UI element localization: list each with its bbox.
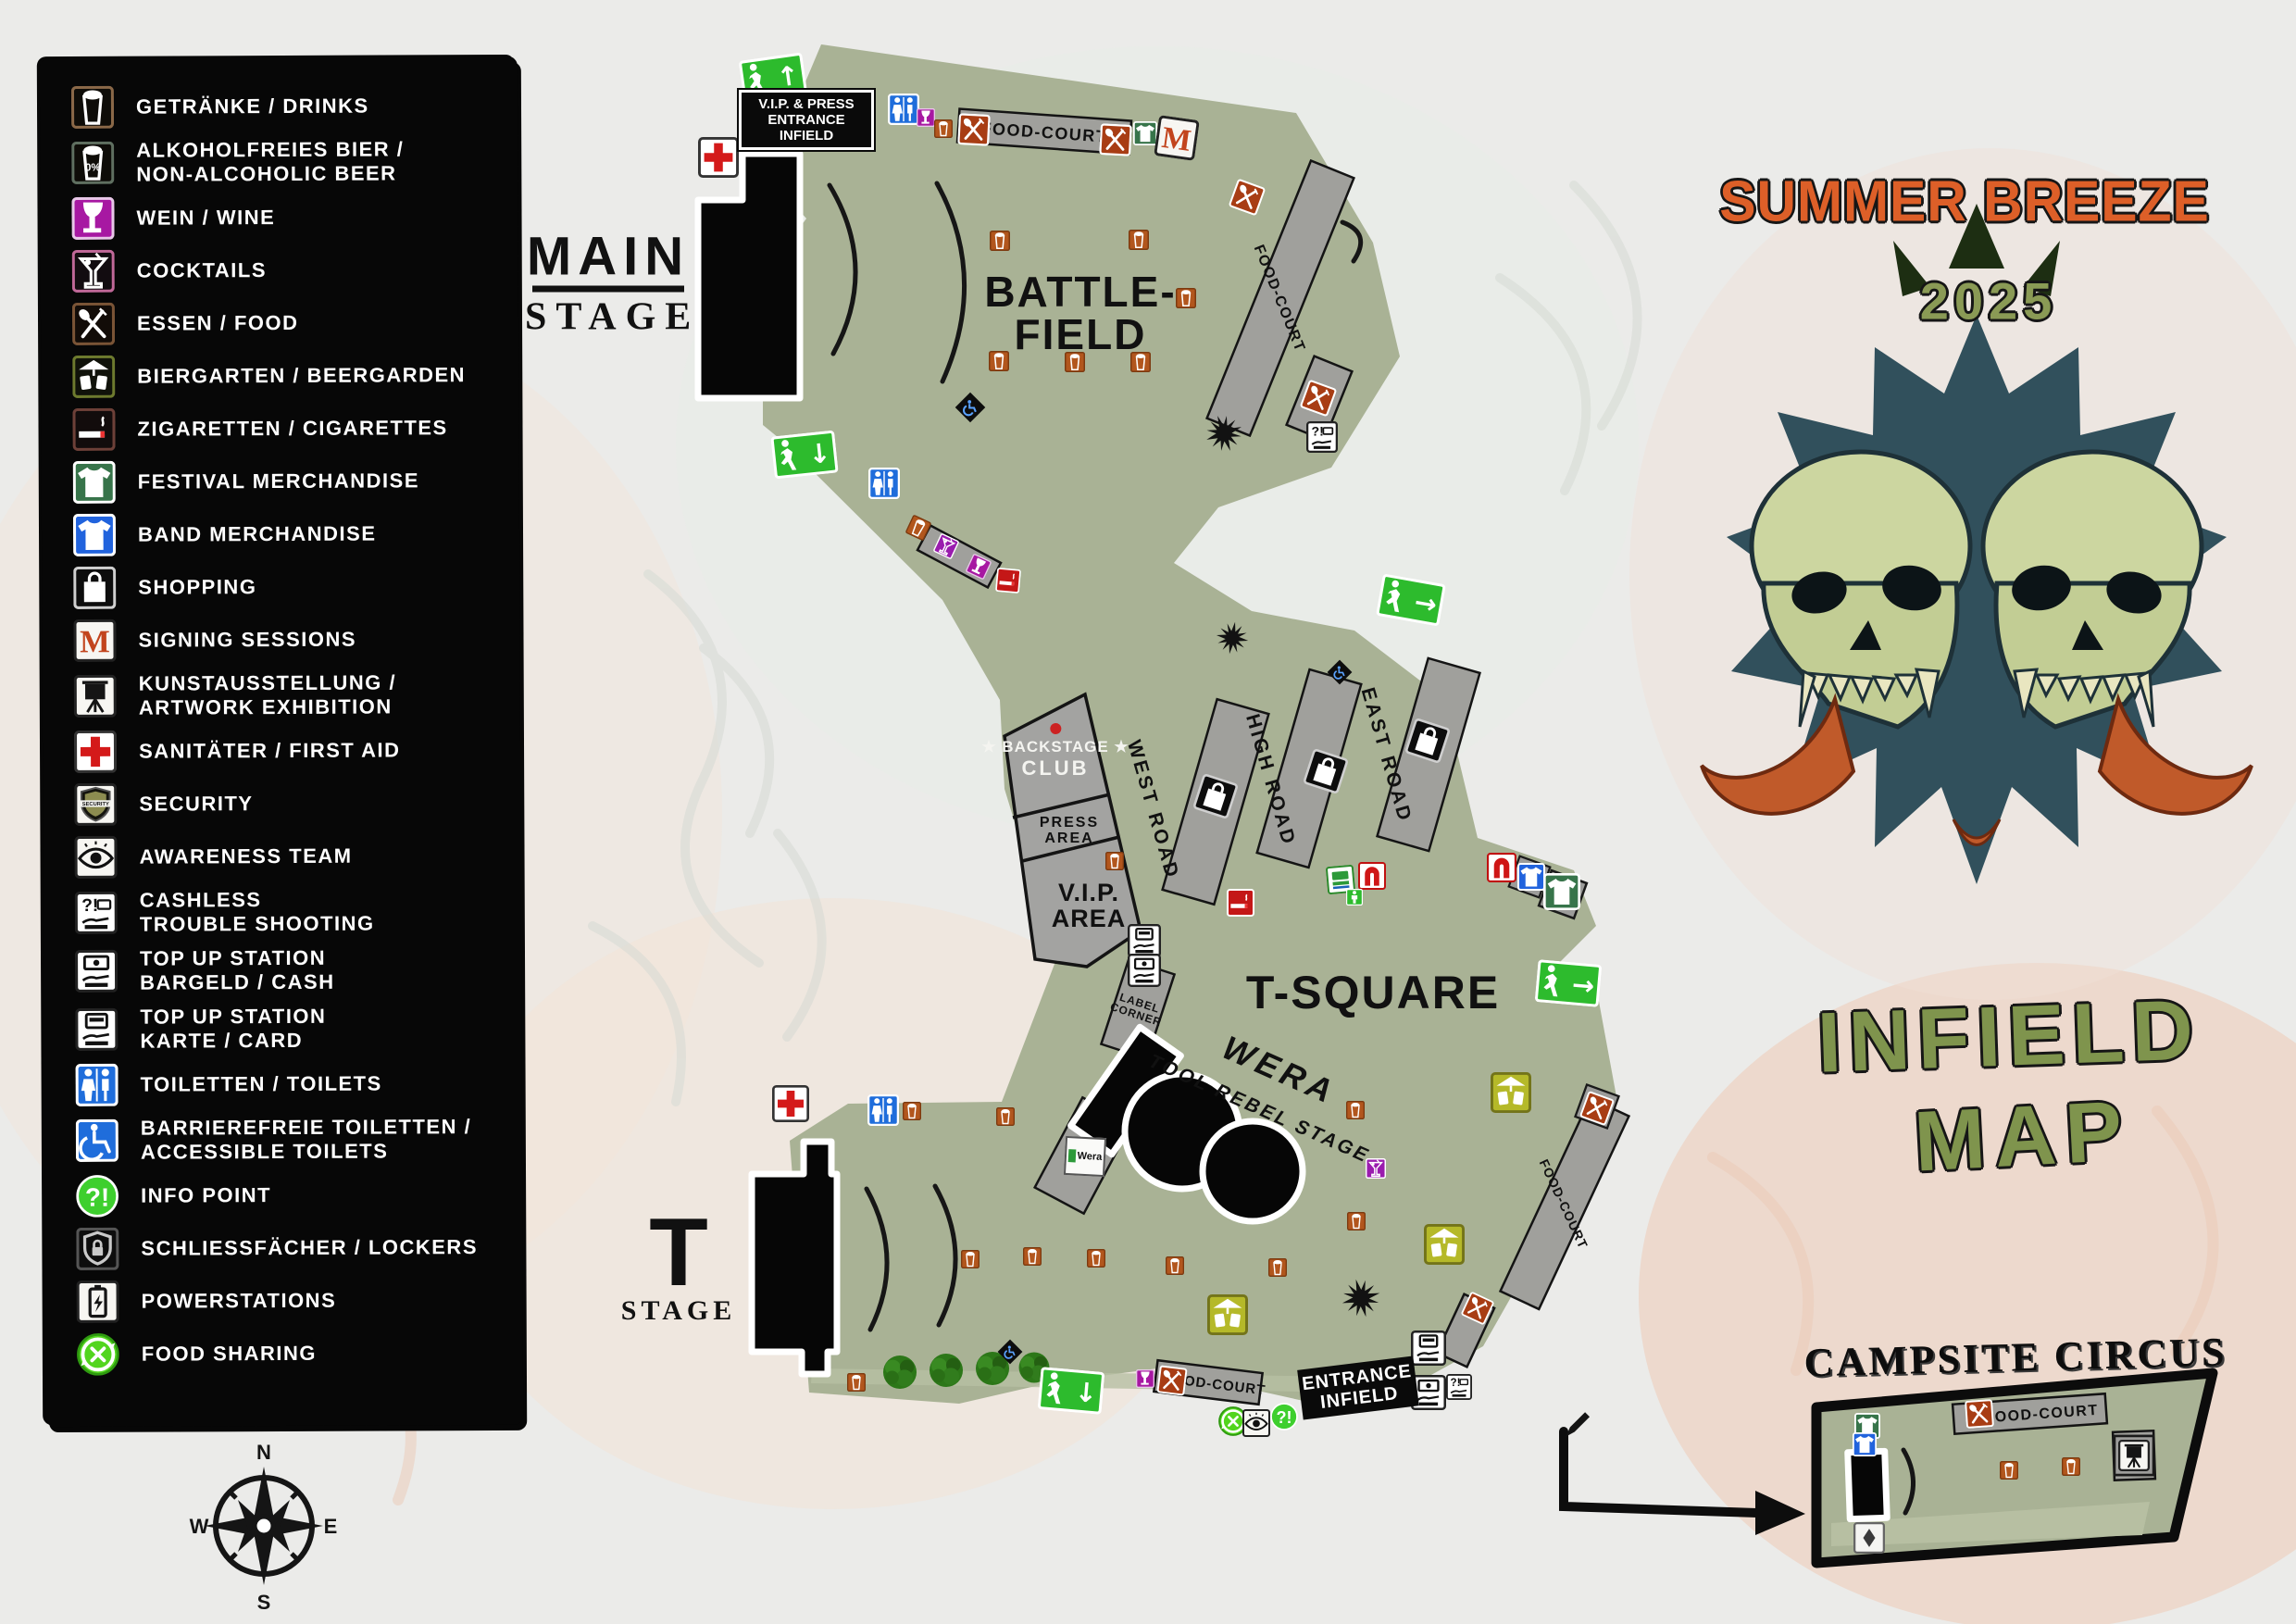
exit-down-icon: ↓ bbox=[1038, 1367, 1105, 1415]
legend-item-label: ALKOHOLFREIES BIER /NON-ALCOHOLIC BEER bbox=[136, 137, 404, 186]
svg-text:→: → bbox=[1571, 968, 1596, 1002]
drinks-icon bbox=[905, 514, 931, 541]
drinks-icon bbox=[1268, 1258, 1287, 1277]
legend-item-toilets: TOILETTEN / TOILETS bbox=[76, 1062, 522, 1106]
legend-item-label: BAND MERCHANDISE bbox=[138, 522, 377, 547]
legend-item-label: CASHLESSTROUBLE SHOOTING bbox=[140, 888, 375, 937]
biergarten-icon bbox=[1491, 1072, 1531, 1113]
logo-title: SUMMER BREEZE bbox=[1719, 169, 2209, 235]
toilets-icon bbox=[888, 94, 919, 125]
wine-icon bbox=[1136, 1369, 1154, 1388]
wera-sign: Wera bbox=[1064, 1136, 1106, 1177]
legend-item-artwork-exhibition: KUNSTAUSSTELLUNG /ARTWORK EXHIBITION bbox=[74, 670, 520, 720]
food-icon bbox=[1299, 379, 1337, 417]
t-square-label: T-SQUARE bbox=[1246, 966, 1500, 1019]
drinks-icon bbox=[1346, 1101, 1365, 1119]
legend-item-label: BIERGARTEN / BEERGARDEN bbox=[137, 363, 466, 389]
legend-item-powerstations: POWERSTATIONS bbox=[77, 1279, 523, 1323]
food-icon bbox=[1156, 1365, 1187, 1395]
press-area-label: PRESS AREA bbox=[1040, 815, 1099, 846]
accessible-diamond-icon bbox=[955, 392, 986, 423]
accessible-toilets-icon bbox=[76, 1119, 119, 1162]
vip-press-entrance-sign: V.I.P. & PRESS ENTRANCE INFIELD bbox=[739, 90, 874, 150]
drinks-icon bbox=[990, 231, 1010, 251]
security-icon: SECURITY bbox=[74, 783, 117, 826]
legend-item-beergarden: BIERGARTEN / BEERGARDEN bbox=[72, 354, 518, 398]
legend-item-band-merchandise: BAND MERCHANDISE bbox=[73, 512, 519, 556]
legend-item-security: SECURITYSECURITY bbox=[74, 781, 520, 826]
legend-item-festival-merchandise: FESTIVAL MERCHANDISE bbox=[73, 459, 519, 504]
battlefield-label: BATTLE- FIELD bbox=[984, 270, 1176, 356]
drinks-icon bbox=[847, 1373, 866, 1392]
sb-star-icon bbox=[1334, 1271, 1389, 1326]
legend-item-label: ZIGARETTEN / CIGARETTES bbox=[137, 416, 447, 441]
legend-item-label: TOILETTEN / TOILETS bbox=[141, 1072, 382, 1097]
drinks-icon bbox=[1176, 288, 1196, 308]
legend-item-food: ESSEN / FOOD bbox=[72, 301, 518, 345]
exit-down-icon: ↓ bbox=[770, 431, 838, 480]
legend-item-wine: WEIN / WINE bbox=[71, 195, 518, 240]
food-icon bbox=[1460, 1291, 1494, 1325]
cigarettes-icon bbox=[995, 568, 1021, 593]
legend-item-shopping: SHOPPING bbox=[73, 565, 519, 609]
svg-text:SECURITY: SECURITY bbox=[82, 802, 109, 807]
accessible-diamond-icon bbox=[997, 1339, 1023, 1365]
svg-text:?!: ?! bbox=[1451, 1377, 1461, 1389]
shopping-icon bbox=[1404, 718, 1451, 764]
cashless-icon: ?! bbox=[1446, 1374, 1472, 1400]
drinks-icon bbox=[961, 1250, 980, 1268]
legend-item-label: SIGNING SESSIONS bbox=[138, 628, 356, 653]
first-aid-icon bbox=[698, 137, 739, 178]
legend-item-topup-cash: TOP UP STATIONBARGELD / CASH bbox=[75, 945, 521, 995]
svg-text:M: M bbox=[1160, 121, 1193, 158]
legend-item-first-aid: SANITÄTER / FIRST AID bbox=[74, 729, 520, 773]
legend-item-drinks: GETRÄNKE / DRINKS bbox=[71, 84, 518, 129]
logo-infield: INFIELD bbox=[1816, 981, 2202, 1092]
food-icon bbox=[1228, 178, 1266, 216]
svg-text:?!: ?! bbox=[1276, 1408, 1291, 1427]
legend-item-cashless-trouble-shooting: ?!CASHLESSTROUBLE SHOOTING bbox=[75, 887, 521, 937]
shopping-icon bbox=[73, 567, 116, 609]
legend-item-food-sharing: FOOD SHARING bbox=[77, 1331, 523, 1376]
legend-item-label: COCKTAILS bbox=[137, 258, 267, 283]
legend-item-cigarettes: ZIGARETTEN / CIGARETTES bbox=[72, 406, 518, 451]
signing-sessions-icon: M bbox=[73, 619, 116, 662]
biergarten-icon bbox=[1207, 1294, 1248, 1335]
band-merch-icon bbox=[1517, 863, 1545, 891]
toilets-icon bbox=[76, 1064, 119, 1106]
legend-item-cocktails: COCKTAILS bbox=[72, 248, 518, 293]
drinks-icon bbox=[903, 1102, 921, 1120]
tree-icon bbox=[879, 1351, 921, 1393]
svg-text:↑: ↑ bbox=[775, 59, 802, 94]
legend-item-label: BARRIEREFREIE TOILETTEN /ACCESSIBLE TOIL… bbox=[141, 1115, 472, 1165]
topup-card-icon bbox=[75, 1008, 118, 1051]
accessible-diamond-icon bbox=[1327, 659, 1353, 685]
beergarden-icon bbox=[72, 356, 115, 398]
drinks-icon bbox=[1129, 230, 1149, 250]
svg-text:?!: ?! bbox=[81, 896, 98, 916]
backstage-club-label: ★ BACKSTAGE ★ CLUB bbox=[981, 723, 1129, 781]
drinks-icon bbox=[934, 119, 953, 138]
legend-item-signing-sessions: MSIGNING SESSIONS bbox=[73, 618, 519, 662]
main-stage-label: MAIN STAGE bbox=[525, 231, 692, 340]
exit-right-icon: → bbox=[1535, 959, 1603, 1007]
legend-item-label: FOOD SHARING bbox=[142, 1342, 317, 1367]
band-merchandise-icon bbox=[73, 514, 116, 556]
drinks-icon bbox=[1105, 852, 1124, 870]
vip-area-label: V.I.P. AREA bbox=[1052, 880, 1127, 931]
legend-item-label: AWARENESS TEAM bbox=[139, 844, 352, 869]
red-arch-icon bbox=[1358, 862, 1386, 890]
food-icon bbox=[1965, 1399, 1994, 1429]
cashless-trouble-shooting-icon: ?! bbox=[75, 892, 118, 934]
logo-map: MAP bbox=[1912, 1082, 2134, 1191]
topup-cash-icon bbox=[1128, 954, 1161, 987]
food-icon bbox=[957, 113, 991, 146]
topup-card-icon bbox=[1411, 1330, 1446, 1366]
drinks-icon bbox=[1023, 1247, 1042, 1266]
cocktail-icon bbox=[932, 532, 959, 559]
white-sign-icon bbox=[1853, 1522, 1885, 1554]
festival-merch-icon bbox=[1133, 121, 1157, 145]
awareness-team-icon bbox=[74, 836, 117, 879]
legend-item-label: WEIN / WINE bbox=[136, 206, 275, 231]
drinks-icon bbox=[2000, 1461, 2018, 1480]
green-person-icon bbox=[1346, 889, 1363, 906]
legend-item-label: KUNSTAUSSTELLUNG /ARTWORK EXHIBITION bbox=[139, 670, 397, 719]
legend-item-topup-card: TOP UP STATIONKARTE / CARD bbox=[75, 1004, 521, 1054]
sb-star-icon bbox=[1197, 406, 1252, 461]
info-point-icon: ?! bbox=[76, 1175, 119, 1218]
logo-year: 2025 bbox=[1920, 271, 2058, 331]
festival-merchandise-icon bbox=[73, 461, 116, 504]
legend-item-label: FESTIVAL MERCHANDISE bbox=[138, 468, 419, 493]
wine-icon bbox=[917, 108, 935, 127]
toilets-icon bbox=[867, 1094, 899, 1126]
drinks-icon bbox=[996, 1107, 1015, 1126]
cashless-icon: ?! bbox=[1306, 421, 1338, 453]
legend-item-label: INFO POINT bbox=[141, 1183, 271, 1208]
wine-icon bbox=[71, 197, 114, 240]
legend-item-label: TOP UP STATIONKARTE / CARD bbox=[140, 1005, 326, 1054]
non-alcoholic-beer-icon: 0% bbox=[71, 142, 114, 184]
svg-text:0%: 0% bbox=[85, 162, 101, 173]
legend-item-label: TOP UP STATIONBARGELD / CASH bbox=[140, 946, 335, 995]
svg-text:M: M bbox=[80, 624, 110, 659]
svg-text:↓: ↓ bbox=[807, 437, 833, 470]
legend-item-label: SANITÄTER / FIRST AID bbox=[139, 738, 401, 763]
food-icon bbox=[1099, 123, 1132, 156]
awareness-icon bbox=[1242, 1409, 1270, 1437]
drinks-icon bbox=[71, 86, 114, 129]
band-merch-icon bbox=[1853, 1432, 1877, 1456]
wine-icon bbox=[965, 553, 992, 580]
festival-merch-icon bbox=[1543, 873, 1580, 910]
cigarettes-icon bbox=[1227, 889, 1254, 917]
topup-cash-icon bbox=[75, 950, 118, 993]
lockers-icon bbox=[76, 1228, 119, 1270]
food-icon bbox=[72, 303, 115, 345]
legend-item-non-alcoholic-beer: 0%ALKOHOLFREIES BIER /NON-ALCOHOLIC BEER bbox=[71, 137, 518, 187]
t-stage-label: T STAGE bbox=[621, 1210, 736, 1327]
tree-icon bbox=[925, 1349, 967, 1392]
svg-text:↓: ↓ bbox=[1074, 1376, 1099, 1409]
biergarten-icon bbox=[1424, 1224, 1465, 1265]
legend-item-label: SCHLIESSFÄCHER / LOCKERS bbox=[141, 1235, 478, 1261]
signing-icon: M bbox=[1154, 115, 1200, 161]
legend-item-label: ESSEN / FOOD bbox=[137, 311, 299, 336]
artwork-exhibition-icon bbox=[74, 675, 117, 718]
drinks-icon bbox=[1166, 1256, 1184, 1275]
drinks-icon bbox=[2062, 1457, 2080, 1476]
legend-item-label: GETRÄNKE / DRINKS bbox=[136, 94, 369, 119]
infield-map-poster: FOOD-COURT FOOD-COURT FOOD-COURT FOOD-CO… bbox=[0, 0, 2296, 1624]
legend-item-label: SECURITY bbox=[139, 792, 253, 817]
legend-item-awareness-team: AWARENESS TEAM bbox=[74, 834, 520, 879]
legend-item-lockers: SCHLIESSFÄCHER / LOCKERS bbox=[76, 1226, 522, 1270]
cocktails-icon bbox=[72, 250, 115, 293]
red-arch-icon bbox=[1487, 853, 1516, 882]
sb-star-icon bbox=[1211, 617, 1254, 659]
exit-right-icon: → bbox=[1376, 573, 1446, 626]
first-aid-icon bbox=[772, 1085, 809, 1122]
legend-item-label: POWERSTATIONS bbox=[142, 1289, 337, 1314]
info-point-icon: ?! bbox=[1270, 1403, 1298, 1430]
artwork-icon bbox=[2118, 1440, 2150, 1471]
legend-item-info-point: ?!INFO POINT bbox=[76, 1173, 522, 1218]
drinks-icon bbox=[1087, 1249, 1105, 1268]
powerstations-icon bbox=[77, 1280, 119, 1323]
shopping-icon bbox=[1303, 748, 1349, 794]
cigarettes-icon bbox=[72, 408, 115, 451]
pen-icon bbox=[1563, 1408, 1594, 1440]
first-aid-icon bbox=[74, 731, 117, 773]
drinks-icon bbox=[1347, 1212, 1366, 1230]
legend-panel: GETRÄNKE / DRINKS0%ALKOHOLFREIES BIER /N… bbox=[40, 56, 523, 1427]
legend-item-accessible-toilets: BARRIEREFREIE TOILETTEN /ACCESSIBLE TOIL… bbox=[76, 1115, 522, 1165]
cocktail-icon bbox=[1366, 1158, 1386, 1179]
food-sharing-icon bbox=[77, 1333, 119, 1376]
topup-card-icon bbox=[1128, 924, 1161, 957]
legend-item-label: SHOPPING bbox=[138, 575, 256, 600]
shopping-icon bbox=[1192, 773, 1239, 819]
toilets-icon bbox=[868, 468, 900, 499]
svg-text:?!: ?! bbox=[1311, 425, 1323, 440]
svg-text:?!: ?! bbox=[85, 1183, 109, 1212]
